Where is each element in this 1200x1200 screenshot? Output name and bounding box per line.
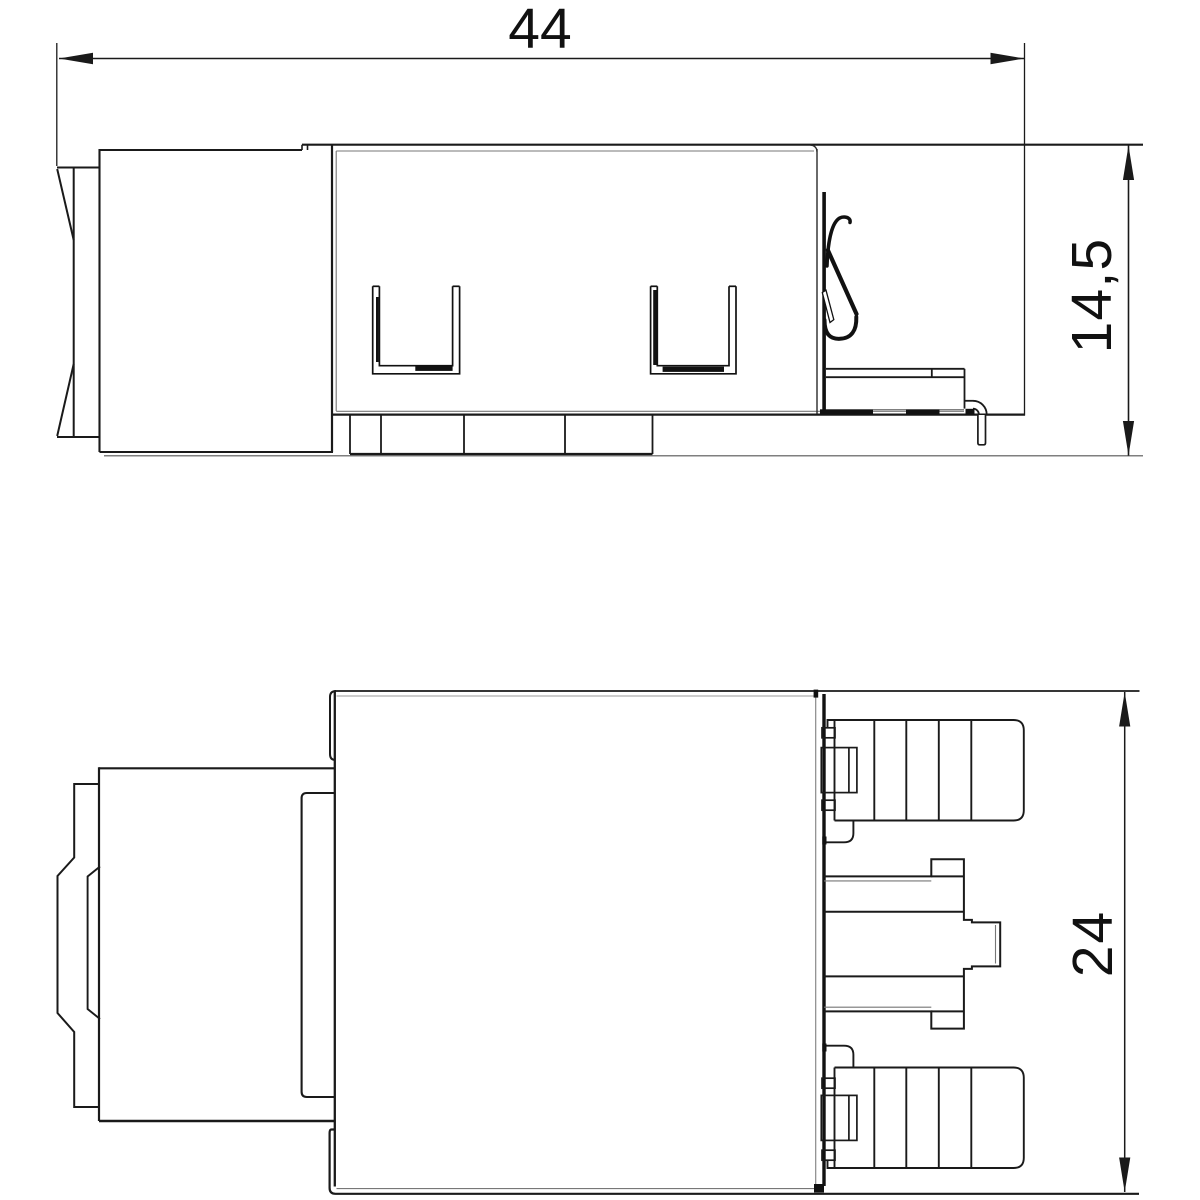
svg-text:14,5: 14,5 [1060, 238, 1124, 354]
svg-text:44: 44 [508, 0, 571, 61]
svg-text:24: 24 [1061, 910, 1125, 977]
